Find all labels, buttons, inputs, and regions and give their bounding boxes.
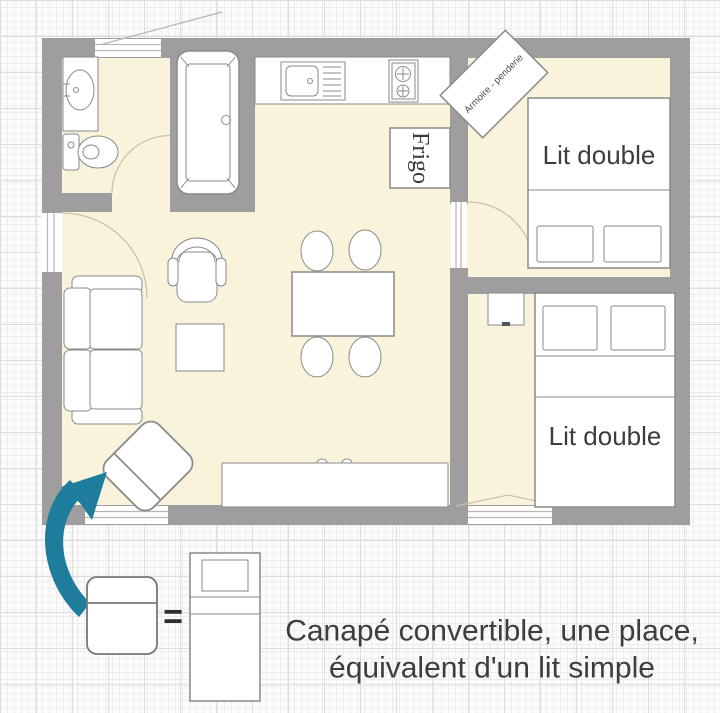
doorway-bedroom-top <box>451 202 467 268</box>
bathtub <box>177 51 239 194</box>
nightstand-handle <box>502 322 510 326</box>
nightstand <box>488 293 524 325</box>
legend: = Canapé convertible, une place, équival… <box>87 553 699 701</box>
legend-caption-line2: équivalent d'un lit simple <box>329 652 655 685</box>
dining-chair <box>349 337 381 377</box>
coffee-table <box>176 324 224 371</box>
pillow <box>537 226 593 262</box>
floor-plan-canvas: Frigo Armoire - penderie Lit double Lit … <box>0 0 720 713</box>
bathroom-wall <box>62 193 112 212</box>
knob <box>342 459 352 463</box>
dining-chair <box>349 230 381 270</box>
bed-bottom-label: Lit double <box>549 421 662 451</box>
armchair <box>168 238 226 302</box>
legend-bed-icon <box>190 553 260 701</box>
dining-chair <box>301 337 333 377</box>
stove <box>389 60 418 102</box>
kitchen-sink <box>281 62 345 100</box>
floor-plan: Frigo Armoire - penderie Lit double Lit … <box>0 0 720 713</box>
legend-caption-line1: Canapé convertible, une place, <box>285 615 699 648</box>
bathroom-sink <box>63 57 98 131</box>
bedroom-partition-lower <box>450 268 468 505</box>
bedrooms-divider-wall <box>450 277 670 294</box>
bed-top-label: Lit double <box>543 140 656 170</box>
pillow <box>604 226 661 262</box>
window-left <box>41 213 62 272</box>
pillow <box>543 306 597 350</box>
pillow <box>611 306 665 350</box>
window-bottom-living <box>85 506 168 524</box>
toilet <box>63 134 118 170</box>
dining-chair <box>301 231 333 271</box>
equals-sign: = <box>163 598 183 636</box>
sofa <box>64 276 142 424</box>
fridge: Frigo <box>390 128 450 188</box>
bedroom-top: Lit double <box>528 98 670 268</box>
dining-table <box>292 272 394 336</box>
legend-sofa-icon <box>87 577 157 654</box>
sideboard <box>222 459 448 507</box>
fridge-label: Frigo <box>407 132 433 184</box>
knob <box>317 459 327 463</box>
